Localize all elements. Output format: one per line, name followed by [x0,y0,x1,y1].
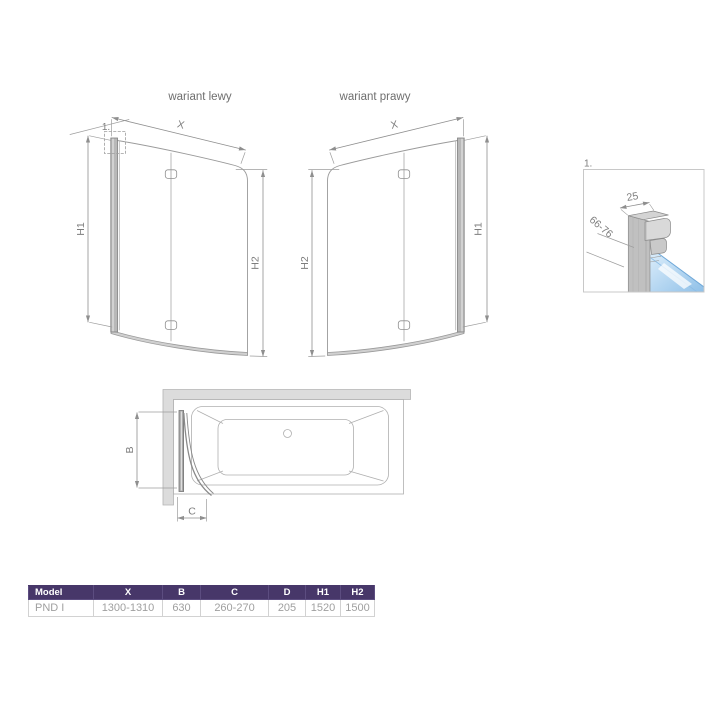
svg-text:H2: H2 [299,256,311,270]
table-header-model: Model [29,586,94,600]
svg-text:X: X [176,118,186,131]
top-view-drawing: B C [124,390,411,522]
hinge-top [165,170,176,179]
wall-profile [458,138,465,332]
cell-h2: 1500 [341,600,375,617]
right-variant-title: wariant prawy [339,91,411,103]
wall-profile [111,138,118,332]
dim-x-right: X [330,118,464,164]
spec-table: Model X B C D H1 H2 PND I 1300-1310 630 … [28,585,375,617]
right-variant-drawing: X H1 H2 [299,118,487,357]
cell-c: 260-270 [201,600,269,617]
cell-x: 1300-1310 [94,600,163,617]
svg-text:X: X [389,118,399,131]
product-spec-sheet: { "titles": { "left_variant": "wariant l… [0,0,720,720]
dim-c: C [178,497,207,522]
left-variant-title: wariant lewy [167,91,232,103]
cell-d: 205 [269,600,306,617]
table-header-row: Model X B C D H1 H2 [29,586,375,600]
svg-text:C: C [188,506,196,518]
hinge-bottom [398,321,409,330]
detail-ref-label: 1. [584,159,592,170]
svg-text:H1: H1 [75,222,87,236]
svg-text:H1: H1 [473,222,485,236]
dim-h2-left: H2 [236,170,267,357]
hinge-top [398,170,409,179]
svg-text:H2: H2 [250,256,262,270]
table-header-h2: H2 [341,586,375,600]
dim-h1-left: H1 [75,136,112,327]
table-header-c: C [201,586,269,600]
hinge-bottom [165,321,176,330]
cell-h1: 1520 [306,600,341,617]
left-variant-drawing: 1. X H1 H2 [70,118,267,357]
table-header-x: X [94,586,163,600]
cell-b: 630 [163,600,201,617]
svg-text:B: B [124,446,136,453]
cell-model: PND I [29,600,94,617]
dim-h1-right: H1 [463,136,487,327]
bathtub [174,400,404,495]
dim-x-left: X [112,118,246,164]
table-header-d: D [269,586,306,600]
table-header-b: B [163,586,201,600]
svg-text:25: 25 [626,190,640,204]
dim-h2-right: H2 [299,170,339,357]
detail-callout-label: 1. [102,122,110,133]
table-header-h1: H1 [306,586,341,600]
detail-drawing: 1. [584,159,705,295]
table-row: PND I 1300-1310 630 260-270 205 1520 150… [29,600,375,617]
